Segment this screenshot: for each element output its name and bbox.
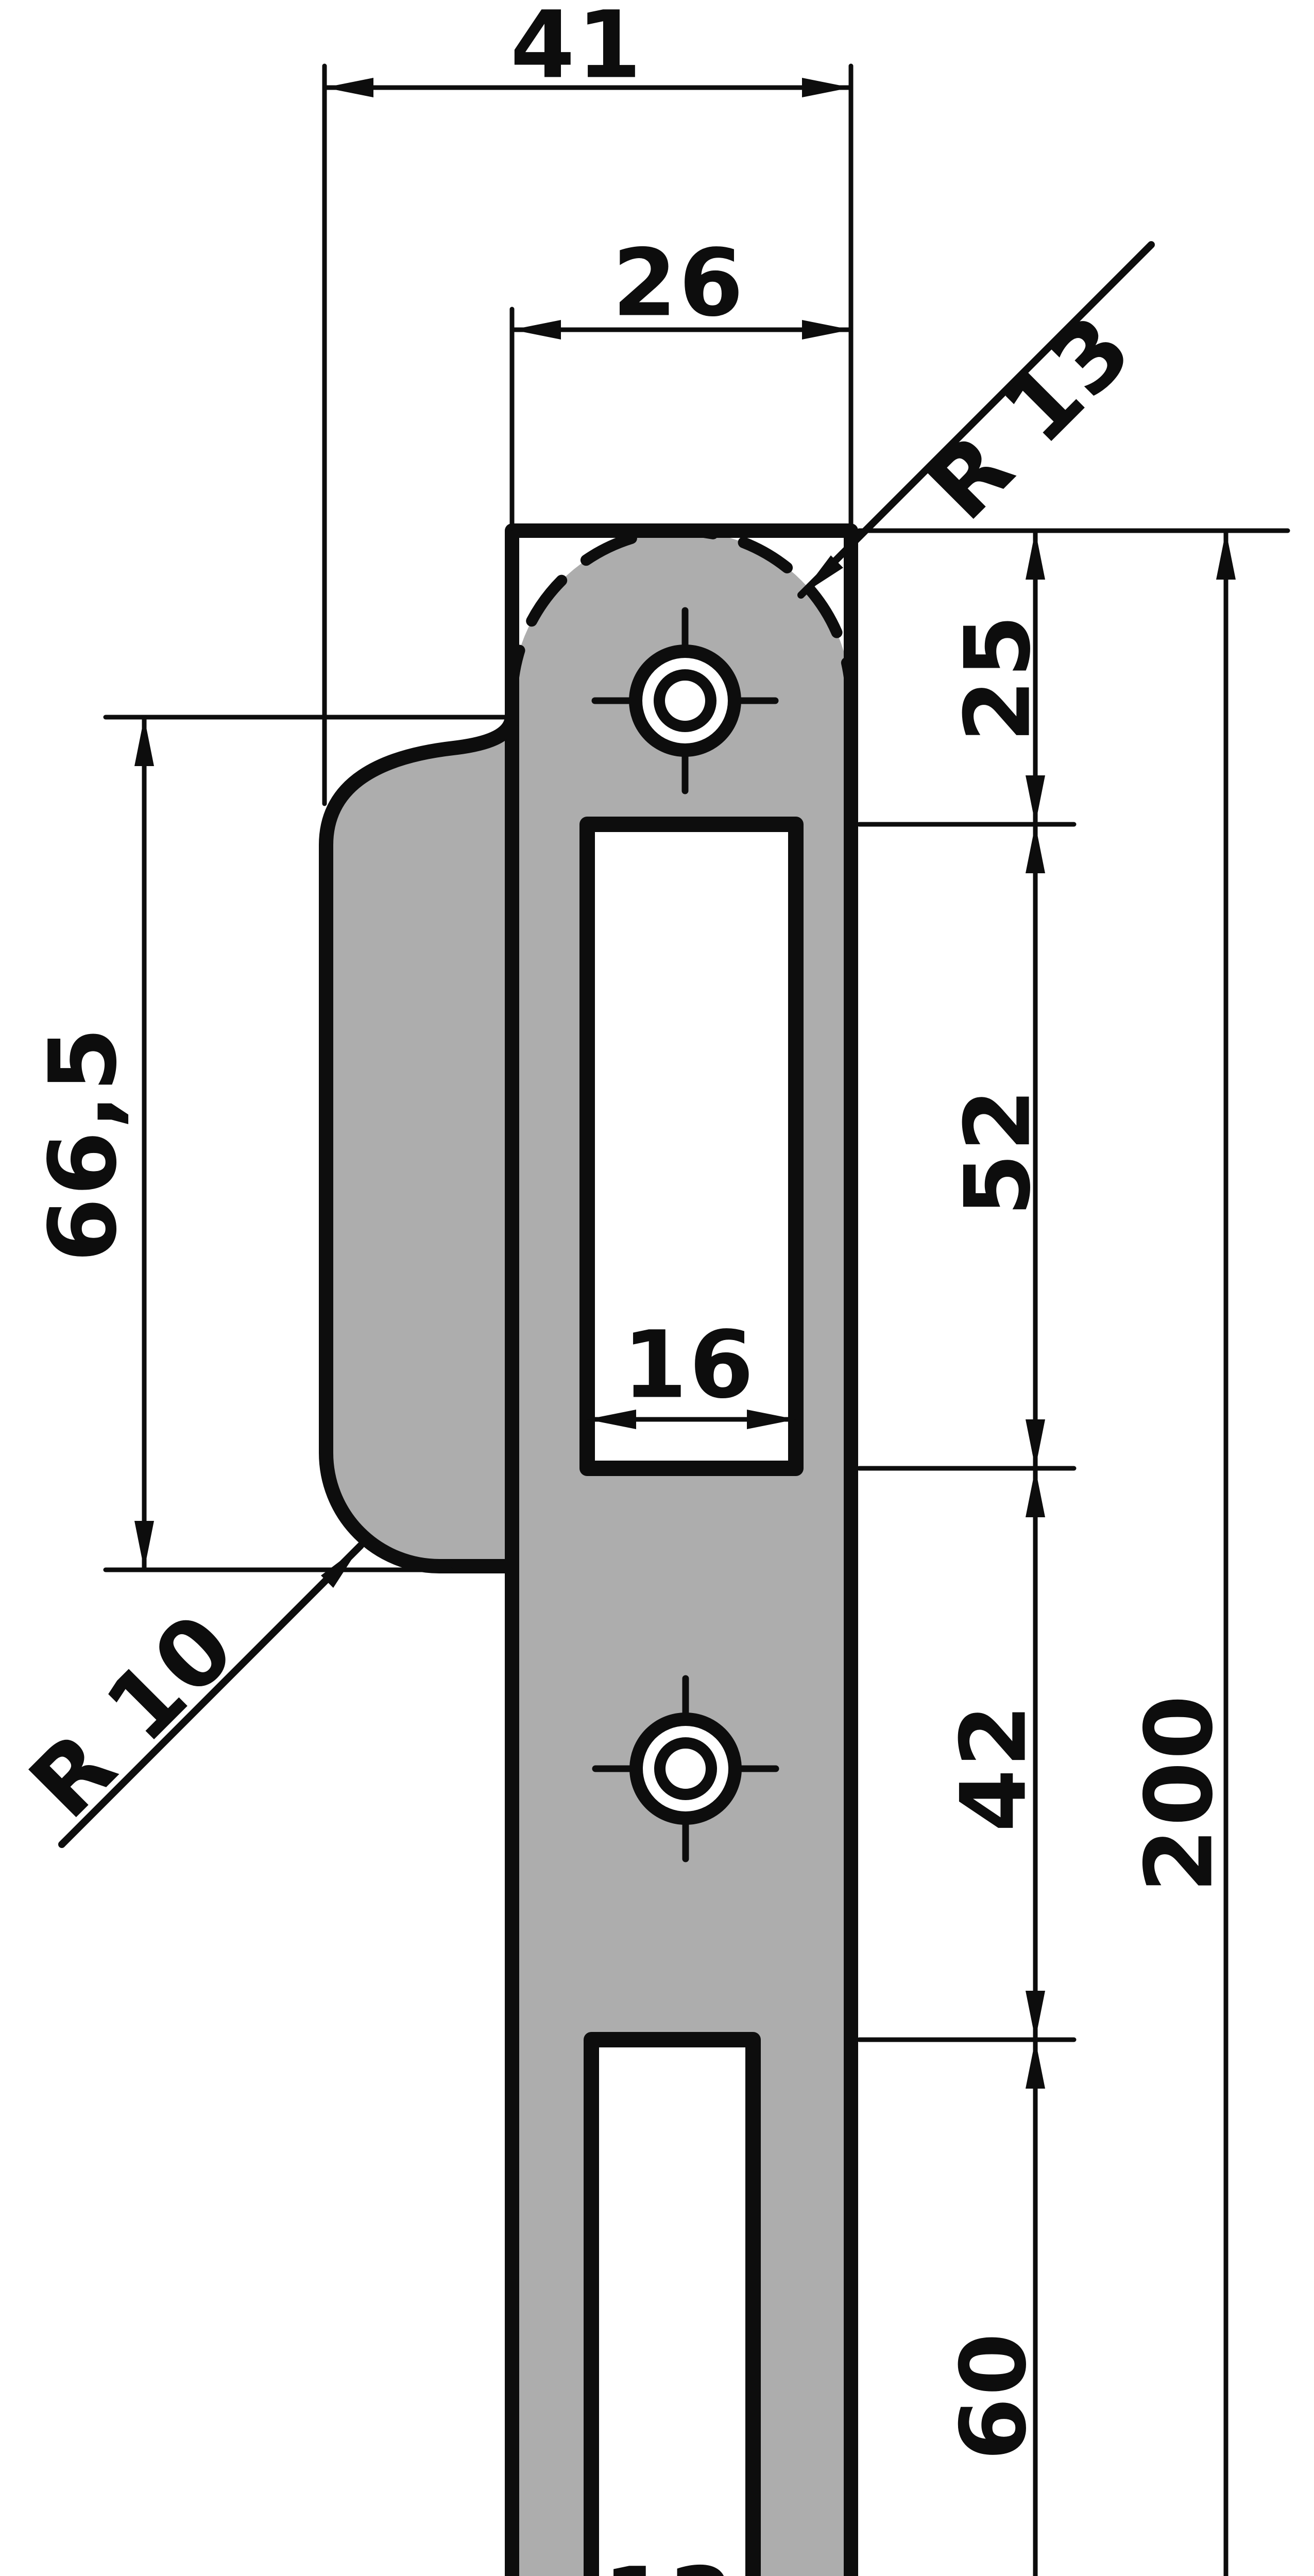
dim-label: 26 [612,230,746,337]
radius-label: R 10 [10,1592,257,1839]
arrowhead [802,78,851,97]
arrowhead [1026,531,1045,580]
arrowhead [802,320,851,340]
arrowhead [134,717,154,766]
dim-label-60: 60 [942,2331,1047,2461]
dim-total-height-200: 200 [1126,531,1236,2576]
dim-label: 16 [623,1312,756,1419]
strike-plate-drawing: 41 26 R 13 66,5 R 10 16 [0,0,1314,2576]
arrowhead [1216,531,1236,580]
dim-slot2-width-12: 12 [591,2548,753,2576]
arrowhead [1026,1991,1045,2040]
dim-label: 12 [603,2548,737,2576]
arrowhead [512,320,561,340]
arrowhead [1026,775,1045,824]
arrowhead [1026,2040,1045,2089]
arrowhead [1026,1468,1045,1517]
dim-label: 41 [510,0,644,99]
dim-radius-r13: R 13 [801,245,1153,595]
technical-drawing-page: 41 26 R 13 66,5 R 10 16 [0,0,1314,2576]
radius-label: R 13 [907,294,1154,541]
dim-plate-width-26: 26 [512,230,851,529]
dim-radius-r10: R 10 [10,1546,361,1844]
dim-label-25: 25 [946,613,1051,742]
arrowhead [1026,824,1045,873]
dim-label-42: 42 [942,1702,1047,1832]
dim-label: 66,5 [30,1025,138,1262]
hole-inner-circle [659,675,711,726]
dim-label: 200 [1126,1693,1234,1893]
dim-chain-right: 25 52 42 60 [859,531,1288,2576]
hole-inner-circle [660,1743,711,1794]
arrowhead [134,1521,154,1570]
arrowhead [1026,1419,1045,1468]
dim-label-52: 52 [946,1087,1051,1216]
front-view [326,531,851,2576]
deadbolt-slot [591,2040,753,2576]
arrowhead [325,78,373,97]
